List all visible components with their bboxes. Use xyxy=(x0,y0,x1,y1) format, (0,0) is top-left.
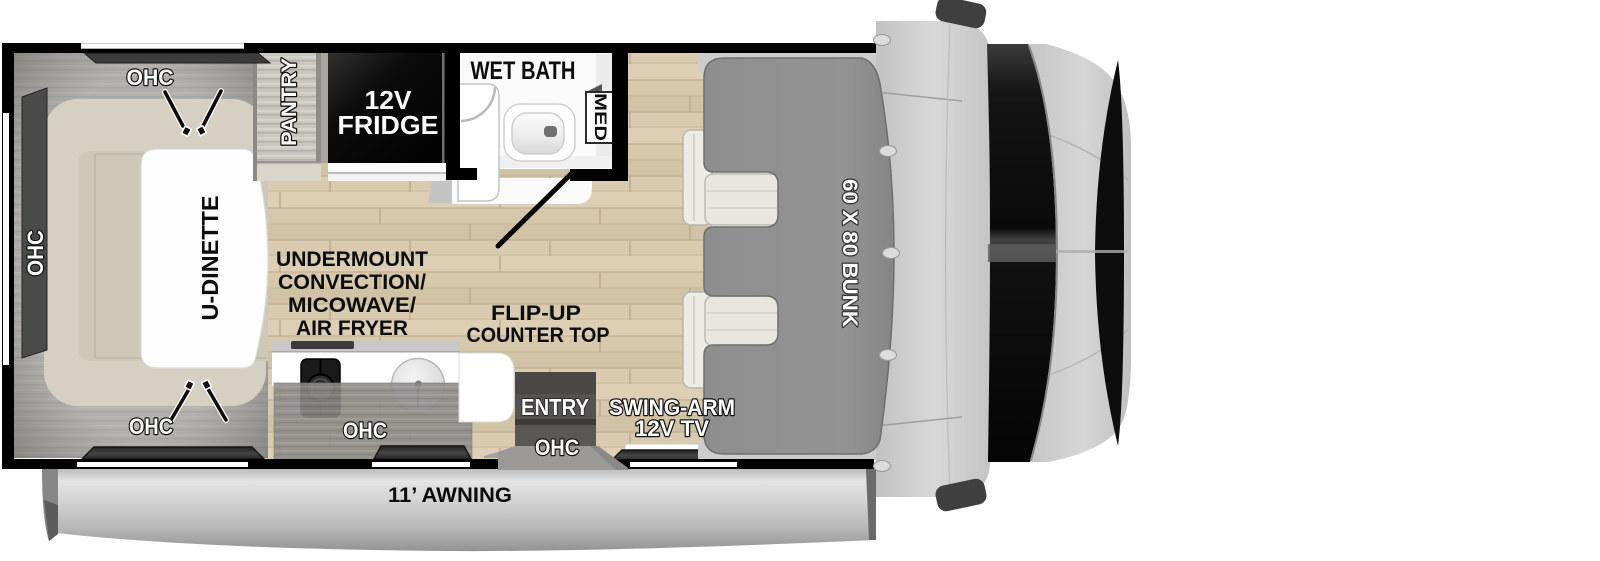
svg-text:60 X 80 BUNK: 60 X 80 BUNK xyxy=(838,179,861,327)
svg-text:OHC: OHC xyxy=(535,435,579,460)
svg-text:FLIP-UP: FLIP-UP xyxy=(491,302,581,325)
svg-text:MICOWAVE/: MICOWAVE/ xyxy=(288,294,416,317)
svg-text:OHC: OHC xyxy=(129,414,173,439)
svg-text:MED: MED xyxy=(591,93,610,141)
svg-text:11’ AWNING: 11’ AWNING xyxy=(388,484,512,507)
svg-text:FRIDGE: FRIDGE xyxy=(338,110,439,140)
svg-text:CONVECTION/: CONVECTION/ xyxy=(278,271,426,294)
svg-text:OHC: OHC xyxy=(127,65,174,90)
svg-text:U-DINETTE: U-DINETTE xyxy=(197,196,223,321)
svg-text:ENTRY: ENTRY xyxy=(521,394,589,420)
svg-text:OHC: OHC xyxy=(343,418,387,443)
svg-text:PANTRY: PANTRY xyxy=(278,58,301,146)
svg-text:UNDERMOUNT: UNDERMOUNT xyxy=(276,248,428,271)
svg-text:AIR FRYER: AIR FRYER xyxy=(296,317,408,340)
svg-text:OHC: OHC xyxy=(23,230,48,276)
svg-text:COUNTER TOP: COUNTER TOP xyxy=(467,324,610,347)
svg-text:WET BATH: WET BATH xyxy=(471,57,576,85)
svg-text:12V TV: 12V TV xyxy=(635,416,709,441)
